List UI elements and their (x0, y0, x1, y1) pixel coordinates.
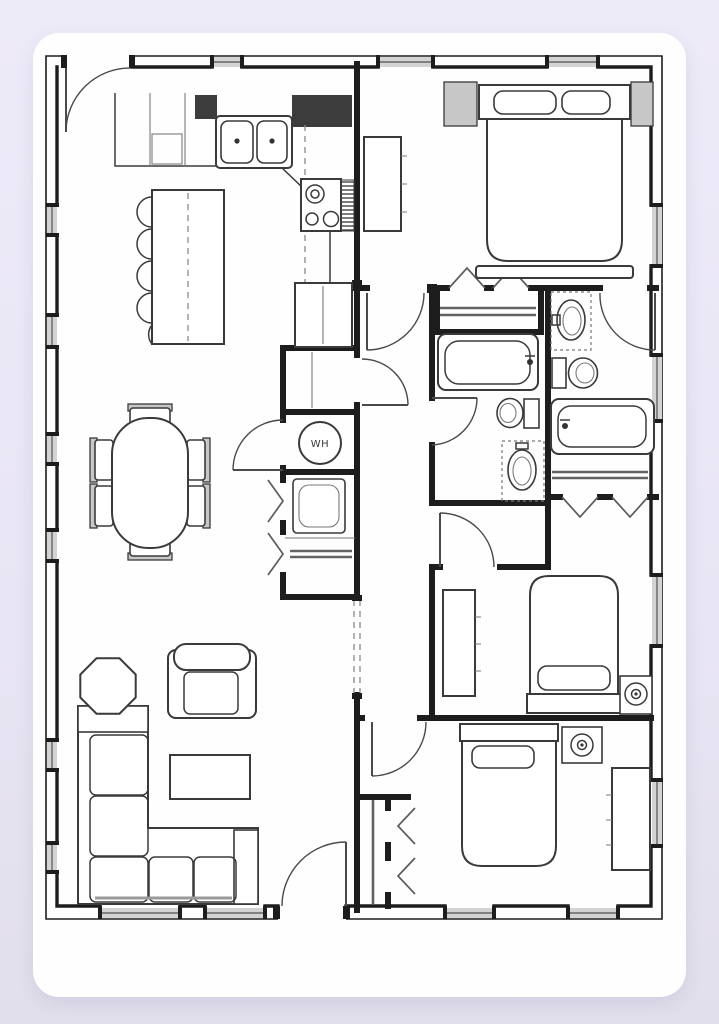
window-icon (98, 906, 182, 919)
faucet (516, 443, 528, 449)
window-icon (46, 313, 59, 349)
hall-bathroom (438, 334, 544, 501)
bedroom3-door (372, 722, 426, 776)
window-icon (46, 203, 59, 237)
bifold-icon (398, 858, 415, 894)
pillow (472, 746, 534, 768)
nightstand (631, 82, 653, 126)
pillow (562, 91, 610, 114)
linen-closet-door (362, 359, 408, 405)
corner-cabinet (292, 95, 352, 127)
dresser (443, 590, 481, 696)
bedroom-2 (443, 576, 652, 714)
dining-area (90, 404, 210, 560)
window-icon (545, 55, 600, 68)
master-bathroom (551, 292, 654, 478)
bifold-icon (268, 533, 283, 575)
window-icon (210, 55, 244, 68)
coffee-table (170, 755, 250, 799)
nightstand (444, 82, 477, 126)
vanity-sink (502, 441, 544, 501)
dresser (364, 137, 407, 231)
toilet (552, 358, 598, 388)
closet-rod (440, 308, 536, 315)
door-jamb (273, 906, 280, 919)
chair-back (174, 644, 250, 670)
range (301, 179, 354, 231)
window-icon (650, 573, 663, 648)
dresser (606, 768, 650, 870)
octagon-end-table (80, 658, 135, 713)
washer-unit (293, 479, 345, 533)
cased-opening (354, 600, 360, 695)
window-icon (46, 841, 59, 874)
bifold-icon (398, 808, 415, 844)
refrigerator (295, 283, 352, 347)
living-room (78, 644, 258, 904)
utility: WH (290, 422, 352, 557)
hall-bath-door (432, 398, 477, 445)
bedroom-3 (373, 724, 650, 904)
bifold-icon (268, 480, 283, 522)
headboard (527, 694, 621, 713)
armrest (234, 830, 258, 904)
bed (527, 576, 621, 713)
bed (460, 724, 558, 866)
window-icon (203, 906, 267, 919)
water-heater-label: WH (311, 439, 329, 450)
window-icon (650, 203, 663, 268)
nightstand-lamp (620, 676, 652, 714)
bed (476, 85, 633, 278)
window-icon (46, 528, 59, 563)
cabinet-block (195, 95, 217, 119)
bathtub (438, 334, 538, 390)
door-jamb (343, 906, 350, 919)
bedroom1-door (367, 293, 424, 350)
water-heater: WH (299, 422, 341, 464)
vanity-sink (551, 292, 591, 350)
kitchen (115, 93, 354, 347)
window-icon (566, 906, 620, 919)
door-jamb (61, 55, 67, 68)
window-icon (376, 55, 435, 68)
kitchen-island (137, 190, 224, 344)
bifold-icon (562, 497, 598, 517)
island-stools (137, 197, 152, 344)
faucet (527, 359, 533, 365)
closet-rod (552, 472, 648, 478)
kitchen-sink (216, 116, 292, 168)
bedroom2-door (440, 513, 494, 567)
nightstand-lamp (562, 727, 602, 763)
window-icon (46, 738, 59, 772)
dishwasher (152, 134, 182, 164)
master-bath-door (600, 293, 655, 350)
back-door (66, 68, 130, 132)
pillow (538, 666, 610, 690)
vent-hatch (341, 180, 354, 231)
sectional-sofa (78, 706, 258, 904)
laundry-rod (290, 551, 352, 557)
faucet (562, 423, 568, 429)
door-jamb (129, 55, 135, 68)
headboard (460, 724, 558, 741)
dining-table (112, 418, 188, 548)
window-icon (650, 778, 663, 848)
armchair (168, 644, 256, 718)
water-heater-door (233, 420, 283, 470)
window-icon (46, 432, 59, 466)
bifold-icon (612, 497, 648, 517)
pillow (494, 91, 556, 114)
bathtub (551, 399, 654, 454)
front-door (282, 842, 346, 906)
toilet (497, 399, 539, 429)
foot-rail (476, 266, 633, 278)
floor-plan: WH (0, 0, 719, 1024)
bedroom-1 (364, 82, 653, 315)
window-icon (443, 906, 496, 919)
